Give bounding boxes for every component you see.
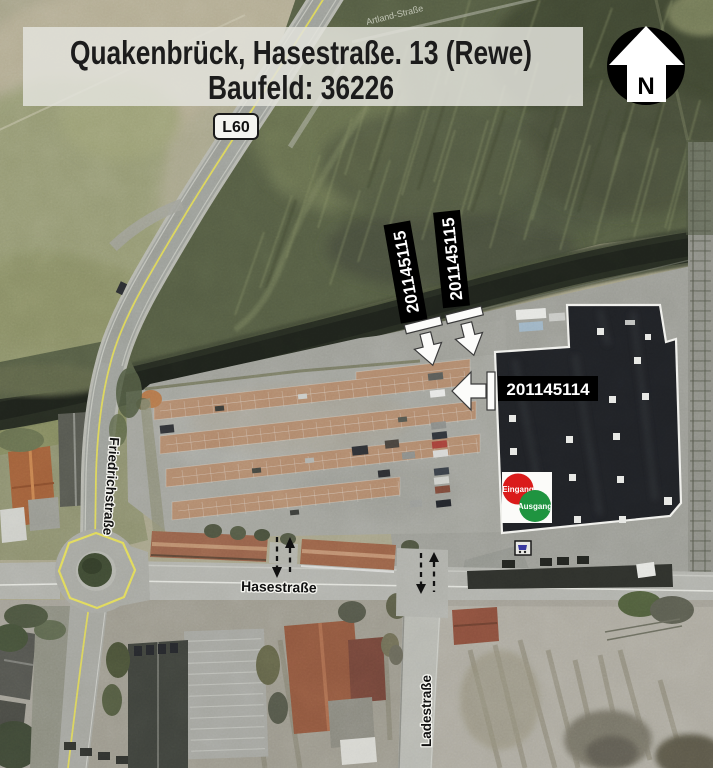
svg-text:Baufeld: 36226: Baufeld: 36226 <box>208 69 394 106</box>
svg-text:Hasestraße: Hasestraße <box>241 578 317 596</box>
svg-text:N: N <box>637 73 654 100</box>
svg-text:201145114: 201145114 <box>506 380 590 399</box>
svg-text:L60: L60 <box>222 119 250 136</box>
svg-text:Quakenbrück, Hasestraße. 13 (R: Quakenbrück, Hasestraße. 13 (Rewe) <box>70 34 532 71</box>
svg-text:Ausgang: Ausgang <box>518 502 552 511</box>
svg-text:Ladestraße: Ladestraße <box>419 674 434 747</box>
